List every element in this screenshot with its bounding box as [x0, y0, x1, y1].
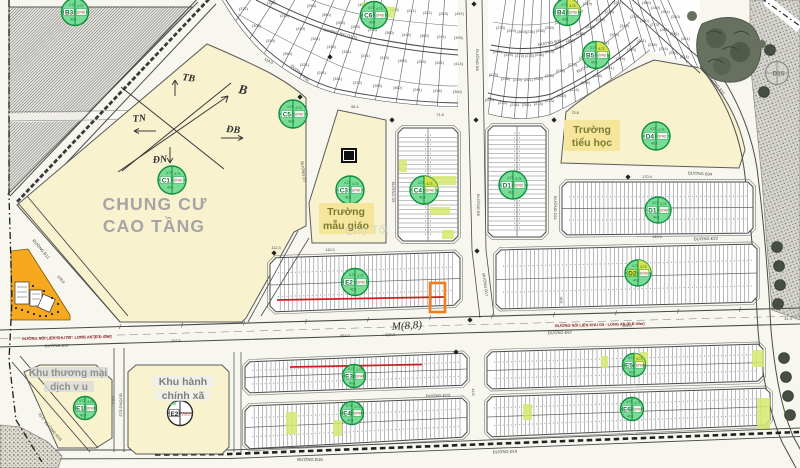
svg-text:4.73: 4.73 [368, 6, 374, 10]
svg-text:3743: 3743 [356, 375, 364, 379]
svg-text:40.3: 40.3 [70, 17, 76, 21]
svg-text:(372): (372) [353, 81, 363, 85]
svg-text:(360): (360) [453, 90, 463, 94]
svg-text:Trường: Trường [573, 124, 611, 136]
svg-text:4.73: 4.73 [590, 46, 596, 50]
svg-text:C1: C1 [162, 178, 171, 185]
svg-text:D1: D1 [648, 208, 657, 215]
svg-text:(263): (263) [351, 25, 361, 29]
svg-text:(305): (305) [454, 36, 464, 40]
svg-text:(321): (321) [267, 1, 277, 5]
svg-text:D15: D15 [773, 71, 785, 78]
svg-text:4.73: 4.73 [652, 201, 658, 205]
svg-text:4.73: 4.73 [346, 404, 352, 408]
svg-text:107.5: 107.5 [171, 339, 181, 343]
svg-text:(360): (360) [385, 31, 395, 35]
svg-text:40.3: 40.3 [419, 195, 425, 199]
svg-text:(263): (263) [417, 60, 427, 64]
svg-text:4.73: 4.73 [650, 127, 656, 131]
svg-text:4.73: 4.73 [349, 273, 355, 277]
svg-text:E1: E1 [76, 406, 84, 413]
svg-text:4.73: 4.73 [356, 368, 362, 372]
svg-text:(360): (360) [322, 13, 332, 17]
svg-text:4.73: 4.73 [660, 202, 666, 206]
svg-text:ĐƯỜNG Đ23: ĐƯỜNG Đ23 [426, 393, 451, 399]
svg-text:4.73: 4.73 [287, 105, 293, 109]
svg-text:(250): (250) [485, 98, 495, 102]
svg-text:(273): (273) [515, 54, 525, 58]
svg-text:M(8,8): M(8,8) [390, 319, 422, 333]
svg-text:4.73: 4.73 [376, 7, 382, 11]
svg-text:CAO TẦNG: CAO TẦNG [103, 215, 205, 236]
svg-text:(214): (214) [526, 30, 536, 34]
svg-text:4.73: 4.73 [658, 128, 664, 132]
svg-text:(319): (319) [280, 14, 290, 18]
svg-text:(273): (273) [496, 26, 506, 30]
svg-text:(273): (273) [534, 102, 544, 106]
svg-text:(319): (319) [296, 27, 306, 31]
svg-text:3743: 3743 [569, 11, 577, 15]
svg-text:3743: 3743 [295, 113, 303, 117]
svg-text:E5: E5 [625, 363, 633, 370]
svg-text:4.73: 4.73 [507, 176, 513, 180]
svg-text:B5: B5 [586, 53, 595, 60]
svg-text:Trường: Trường [327, 206, 365, 218]
svg-text:4.73: 4.73 [352, 182, 358, 186]
svg-text:(249): (249) [583, 2, 593, 6]
svg-text:(263): (263) [373, 84, 383, 88]
svg-text:(236): (236) [596, 18, 606, 22]
svg-text:(241): (241) [317, 71, 327, 75]
svg-text:4.73: 4.73 [561, 3, 567, 7]
svg-text:4.73: 4.73 [348, 367, 354, 371]
svg-text:40.3: 40.3 [653, 215, 659, 219]
svg-text:(360): (360) [642, 1, 652, 5]
svg-text:40.3: 40.3 [369, 20, 375, 24]
svg-text:4.73: 4.73 [418, 181, 424, 185]
svg-text:(249): (249) [504, 53, 514, 57]
svg-text:(273): (273) [545, 99, 555, 103]
svg-text:(321): (321) [300, 63, 310, 67]
svg-text:4.73: 4.73 [426, 182, 432, 186]
svg-text:Khu thương mại: Khu thương mại [29, 368, 107, 379]
svg-text:(241): (241) [407, 9, 417, 13]
svg-text:73.8: 73.8 [571, 111, 578, 115]
svg-text:ĐƯỜNG Đ16: ĐƯỜNG Đ16 [297, 457, 323, 462]
svg-text:4.73: 4.73 [357, 274, 363, 278]
svg-text:Khu hành: Khu hành [159, 376, 207, 388]
svg-text:4.73: 4.73 [344, 181, 350, 185]
svg-text:42.6: 42.6 [471, 389, 475, 396]
svg-text:(263): (263) [307, 4, 317, 8]
svg-text:4.73: 4.73 [354, 405, 360, 409]
svg-text:B3: B3 [65, 10, 74, 17]
svg-text:4.73: 4.73 [632, 264, 638, 268]
svg-text:3743: 3743 [658, 135, 666, 139]
svg-text:66.1: 66.1 [351, 105, 358, 109]
svg-text:(249): (249) [507, 29, 517, 33]
svg-text:40.3: 40.3 [629, 370, 635, 374]
svg-text:40.3: 40.3 [508, 190, 514, 194]
svg-text:(414): (414) [433, 89, 443, 93]
svg-text:(360): (360) [557, 94, 567, 98]
svg-text:2353.2: 2353.2 [182, 413, 193, 417]
svg-text:4.73: 4.73 [87, 400, 93, 404]
svg-text:(319): (319) [266, 39, 276, 43]
svg-text:4.73: 4.73 [515, 177, 521, 181]
svg-text:(321): (321) [342, 50, 352, 54]
svg-text:(321): (321) [333, 77, 343, 81]
svg-text:(273): (273) [556, 69, 566, 73]
svg-text:(238): (238) [593, 74, 603, 78]
svg-text:4.73: 4.73 [69, 3, 75, 7]
svg-text:265.5: 265.5 [622, 324, 632, 328]
svg-text:31.3: 31.3 [784, 317, 791, 321]
svg-text:3743: 3743 [77, 11, 85, 15]
svg-text:4.73: 4.73 [598, 47, 604, 51]
svg-text:(360): (360) [566, 39, 576, 43]
svg-text:(249): (249) [586, 25, 596, 29]
svg-text:ĐB: ĐB [225, 124, 241, 136]
svg-text:3743: 3743 [354, 412, 362, 416]
svg-text:40.3: 40.3 [80, 413, 86, 417]
svg-text:112.0: 112.0 [325, 248, 334, 252]
svg-text:40.3: 40.3 [591, 60, 597, 64]
svg-text:Chợ Tốt: Chợ Tốt [345, 222, 390, 238]
svg-text:D2: D2 [628, 271, 637, 278]
svg-text:(241): (241) [361, 54, 371, 58]
svg-text:C3: C3 [340, 188, 349, 195]
svg-text:145.0: 145.0 [652, 235, 662, 239]
svg-text:71.6: 71.6 [436, 113, 443, 117]
svg-text:210.2: 210.2 [385, 333, 395, 337]
svg-text:3743: 3743 [640, 272, 648, 276]
svg-text:(360): (360) [283, 52, 293, 56]
svg-text:(273): (273) [525, 54, 535, 58]
svg-text:(273): (273) [555, 45, 565, 49]
svg-text:(249): (249) [616, 57, 626, 61]
svg-text:(261): (261) [522, 103, 532, 107]
svg-text:(250): (250) [545, 26, 555, 30]
svg-text:(414): (414) [454, 62, 464, 66]
svg-text:3743: 3743 [357, 281, 365, 285]
svg-text:C6: C6 [364, 13, 373, 20]
svg-text:4.73: 4.73 [295, 106, 301, 110]
svg-text:3743: 3743 [598, 54, 606, 58]
svg-text:40.3: 40.3 [627, 414, 633, 418]
svg-text:3743: 3743 [352, 189, 360, 193]
svg-text:3743: 3743 [376, 14, 384, 18]
svg-text:E2: E2 [171, 411, 179, 418]
svg-text:(305): (305) [252, 24, 262, 28]
svg-text:ĐƯỜNG B9: ĐƯỜNG B9 [475, 49, 480, 72]
svg-text:D1: D1 [503, 183, 512, 190]
svg-text:(457): (457) [455, 12, 465, 16]
svg-text:ĐƯỜNG D9: ĐƯỜNG D9 [391, 182, 396, 203]
svg-text:(414): (414) [402, 33, 412, 37]
svg-text:ĐƯỜNG Đ9: ĐƯỜNG Đ9 [476, 194, 481, 217]
svg-text:40.3: 40.3 [288, 119, 294, 123]
svg-text:(273): (273) [489, 73, 499, 77]
svg-text:E4: E4 [343, 411, 351, 418]
svg-text:(249): (249) [493, 50, 503, 54]
svg-text:(241): (241) [437, 35, 447, 39]
svg-text:4.73: 4.73 [640, 265, 646, 269]
svg-text:40.3: 40.3 [167, 185, 173, 189]
svg-text:40.3: 40.3 [562, 17, 568, 21]
svg-text:TN: TN [132, 113, 147, 125]
svg-text:4.73: 4.73 [626, 400, 632, 404]
svg-text:4.73: 4.73 [79, 399, 85, 403]
svg-text:(273): (273) [568, 63, 578, 67]
svg-text:(250): (250) [610, 33, 620, 37]
svg-text:4.73: 4.73 [174, 172, 180, 176]
svg-text:(236): (236) [576, 32, 586, 36]
svg-text:(236): (236) [545, 74, 555, 78]
svg-text:3743: 3743 [660, 209, 668, 213]
svg-text:(319): (319) [380, 56, 390, 60]
svg-text:(261): (261) [524, 78, 534, 82]
svg-text:(249): (249) [513, 78, 523, 82]
svg-text:3743: 3743 [515, 184, 523, 188]
svg-text:4.73: 4.73 [634, 401, 640, 405]
svg-text:CHUNG CƯ: CHUNG CƯ [103, 194, 208, 214]
svg-text:(321): (321) [423, 11, 433, 15]
svg-text:ĐƯỜNG Đ57: ĐƯỜNG Đ57 [45, 343, 70, 349]
svg-text:(236): (236) [648, 43, 658, 47]
svg-text:(261): (261) [681, 37, 691, 41]
svg-text:ĐƯỜNG Đ16: ĐƯỜNG Đ16 [493, 449, 518, 455]
svg-text:112.3: 112.3 [271, 246, 280, 250]
svg-text:ĐƯỜNG Đ13: ĐƯỜNG Đ13 [119, 394, 124, 417]
svg-text:40.3: 40.3 [349, 381, 355, 385]
svg-text:chính xã: chính xã [162, 390, 205, 402]
svg-text:B4: B4 [557, 10, 566, 17]
svg-text:170.4: 170.4 [642, 175, 652, 179]
svg-text:3743: 3743 [87, 407, 95, 411]
svg-text:(214): (214) [570, 88, 580, 92]
svg-text:(241): (241) [413, 88, 423, 92]
svg-text:(261): (261) [661, 10, 671, 14]
svg-text:(360): (360) [420, 34, 430, 38]
svg-text:103.5: 103.5 [111, 396, 115, 405]
svg-text:4.73: 4.73 [569, 4, 575, 8]
svg-text:(372): (372) [239, 7, 249, 11]
svg-text:(249): (249) [627, 48, 637, 52]
svg-text:(249): (249) [534, 77, 544, 81]
svg-text:(263): (263) [336, 21, 346, 25]
svg-text:3743: 3743 [636, 364, 644, 368]
svg-text:(236): (236) [535, 53, 545, 57]
svg-text:(321): (321) [435, 61, 445, 65]
svg-text:E2: E2 [345, 280, 353, 287]
svg-text:D4: D4 [646, 134, 655, 141]
svg-text:40.3: 40.3 [651, 141, 657, 145]
svg-text:(360): (360) [393, 86, 403, 90]
svg-text:654.0: 654.0 [340, 334, 350, 338]
svg-text:(238): (238) [605, 10, 615, 14]
svg-text:4.73: 4.73 [77, 4, 83, 8]
svg-text:(273): (273) [650, 23, 660, 27]
svg-text:(249): (249) [581, 81, 591, 85]
svg-text:40.3: 40.3 [633, 278, 639, 282]
svg-text:(249): (249) [651, 6, 661, 10]
svg-text:C5: C5 [283, 112, 292, 119]
svg-text:(214): (214) [510, 103, 520, 107]
svg-text:(236): (236) [501, 77, 511, 81]
svg-text:40.3: 40.3 [347, 418, 353, 422]
svg-text:(250): (250) [671, 15, 681, 19]
svg-text:(249): (249) [545, 50, 555, 54]
svg-text:40.3: 40.3 [350, 287, 356, 291]
svg-text:3743: 3743 [174, 179, 182, 183]
svg-text:dịch v u: dịch v u [50, 382, 88, 393]
svg-text:ĐƯỜNG Đ57: ĐƯỜNG Đ57 [548, 330, 573, 336]
svg-text:(360): (360) [398, 59, 408, 63]
svg-text:ĐƯỜNG D11: ĐƯỜNG D11 [553, 196, 558, 221]
svg-text:3743: 3743 [426, 189, 434, 193]
svg-text:40.3: 40.3 [345, 195, 351, 199]
svg-text:(273): (273) [498, 101, 508, 105]
svg-text:(321): (321) [311, 37, 321, 41]
svg-text:(214): (214) [659, 47, 669, 51]
svg-text:(249): (249) [620, 24, 630, 28]
svg-text:TB: TB [182, 72, 197, 85]
svg-text:4.73: 4.73 [628, 356, 634, 360]
svg-text:E6: E6 [623, 407, 631, 414]
svg-text:(263): (263) [439, 12, 449, 16]
svg-text:(414): (414) [327, 45, 337, 49]
svg-text:4.73: 4.73 [166, 171, 172, 175]
svg-text:ĐƯỜNG Đ22: ĐƯỜNG Đ22 [694, 236, 719, 242]
svg-text:E3: E3 [345, 374, 353, 381]
svg-text:(261): (261) [637, 39, 647, 43]
svg-text:4.73: 4.73 [636, 357, 642, 361]
svg-text:tiểu học: tiểu học [572, 137, 612, 149]
svg-text:ĐN: ĐN [151, 154, 168, 166]
svg-text:C4: C4 [414, 188, 423, 195]
svg-text:(261): (261) [605, 66, 615, 70]
svg-text:3743: 3743 [634, 408, 642, 412]
